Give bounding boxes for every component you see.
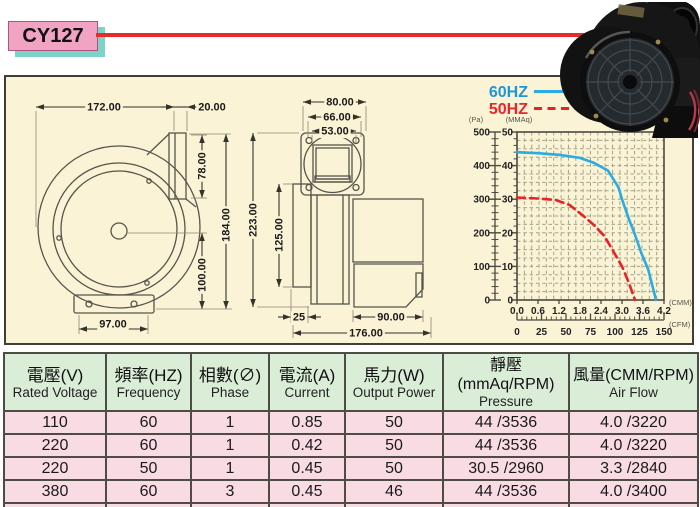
screw [656,40,661,45]
cell-airflow: 3.3 /2840 [569,457,698,480]
dim-arrow [199,135,205,143]
motor-upper [353,199,423,262]
cell-current: 0.45 [269,480,345,503]
screw [594,114,599,119]
pa-tick: 0 [484,296,490,307]
dim-label: 125.00 [274,218,286,252]
product-photo [548,0,700,140]
dim-arrow [308,314,316,320]
cell-power: 46 [345,503,443,507]
performance-chart [489,132,664,320]
dim-label: 176.00 [349,328,383,340]
cell-phase: 1 [191,411,269,434]
dim-arrow [199,190,205,198]
dim-arrow [415,314,423,320]
dim-label: 90.00 [377,312,405,324]
blower-photo-art [560,2,700,138]
cmm-tick: 0.6 [531,306,545,317]
col-header-phase: 相數(∅)Phase [191,353,269,411]
dim-arrow [276,279,282,287]
cell-voltage: 380 [4,503,106,507]
table-row: 3806030.454644 /35364.0 /3400 [4,480,698,503]
cell-airflow: 4.0 /3220 [569,434,698,457]
cmm-tick: 1.2 [552,306,566,317]
mmaq-tick: 50 [502,128,514,139]
table-row: 2206010.425044 /35364.0 /3220 [4,434,698,457]
dim-label: 53.00 [321,126,349,138]
model-number: CY127 [22,25,83,47]
cell-current: 0.42 [269,434,345,457]
bolt-hole [145,281,149,285]
outlet-duct-lower [186,199,196,207]
axis-unit-pa: (Pa) [469,115,484,124]
pa-tick: 100 [473,262,490,273]
dim-arrow [276,184,282,192]
cmm-tick: 3.6 [636,306,650,317]
cell-current: 0.85 [269,411,345,434]
pa-tick: 500 [473,128,490,139]
cmm-tick: 0.0 [510,306,524,317]
model-badge: CY127 [8,21,98,51]
dim-label: 223.00 [248,203,260,237]
inlet-ring-inner [61,171,177,287]
cell-phase: 1 [191,434,269,457]
cfm-tick: 100 [607,327,624,338]
dim-arrow [223,301,229,309]
outlet-opening-inner [316,148,349,179]
pa-tick: 200 [473,228,490,239]
mmaq-tick: 0 [507,296,513,307]
cfm-tick: 50 [560,327,572,338]
dim-arrow [283,314,291,320]
cell-pressure: 30.5 /2960 [443,457,569,480]
dim-label: 172.00 [87,102,121,114]
dim-arrow [166,104,174,110]
dim-label: 20.00 [198,102,226,114]
dim-arrow [358,99,366,105]
dim-label: 66.00 [323,112,351,124]
legend-label-60hz: 60HZ [489,84,528,101]
cfm-tick: 125 [631,327,648,338]
table-row: 1106010.855044 /35364.0 /3220 [4,411,698,434]
dim-arrow [140,326,148,332]
screw [664,118,669,123]
dim-label: 25 [293,312,305,324]
col-header-output-power: 馬力(W)Output Power [345,353,443,411]
dim-label: 80.00 [326,97,354,109]
side-view-drawing [293,133,423,307]
legend-label-50hz: 50HZ [489,101,528,118]
cell-pressure: 44 /3536 [443,434,569,457]
dim-arrow [423,330,431,336]
dim-arrow [79,326,87,332]
cell-frequency: 60 [106,480,191,503]
motor-lower [354,264,423,307]
mmaq-tick: 10 [502,262,514,273]
dim-arrow [353,314,361,320]
cell-current: 0.45 [269,457,345,480]
dim-arrow [293,330,301,336]
cell-frequency: 50 [106,457,191,480]
dim-arrow [36,104,44,110]
bolt-hole [57,236,61,240]
spec-table: 電壓(V)Rated Voltage 頻率(HZ)Frequency 相數(∅)… [3,352,699,507]
cmm-tick: 4.2 [657,306,671,317]
datasheet-page: CY127 [0,0,700,507]
cell-pressure: 44 /3536 [443,411,569,434]
pa-tick: 300 [473,195,490,206]
dim-arrow [303,99,311,105]
cfm-tick: 75 [585,327,597,338]
scroll-side [293,184,311,287]
dim-arrow [308,114,316,120]
cfm-tick: 25 [536,327,548,338]
cell-power: 50 [345,411,443,434]
col-header-pressure: 靜壓(mmAq/RPM)Pressure [443,353,569,411]
cell-frequency: 50 [106,503,191,507]
cell-airflow: 3.3 /2840 [569,503,698,507]
mmaq-tick: 40 [502,161,514,172]
screw [590,50,595,55]
dim-label: 97.00 [99,319,127,331]
dimension-lines [36,99,431,338]
cell-pressure: 30.5 /2960 [443,503,569,507]
dim-arrow [199,301,205,309]
flange-hole [306,138,312,144]
cell-current: 0.3 [269,503,345,507]
axis-unit-cmm: (CMM) [669,298,692,307]
shaft-hub [111,223,127,239]
cell-phase: 3 [191,480,269,503]
mmaq-tick: 30 [502,195,514,206]
cell-phase: 1 [191,457,269,480]
col-header-voltage: 電壓(V)Rated Voltage [4,353,106,411]
cell-phase: 3 [191,503,269,507]
cell-voltage: 380 [4,480,106,503]
cell-power: 50 [345,434,443,457]
dim-arrow [353,114,361,120]
grille-hub [623,75,637,89]
cell-voltage: 220 [4,457,106,480]
inlet-ring-outer [53,163,185,295]
cell-power: 50 [345,457,443,480]
flange-hole [353,185,359,191]
cell-frequency: 60 [106,434,191,457]
dim-label: 100.00 [197,258,209,292]
mmaq-tick: 20 [502,228,514,239]
axis-unit-cfm: (CFM) [669,320,691,329]
cfm-tick: 0 [514,327,520,338]
cell-voltage: 220 [4,434,106,457]
dim-label: 184.00 [221,208,233,242]
cell-power: 46 [345,480,443,503]
dim-arrow [250,133,256,141]
dim-arrow [250,299,256,307]
cell-voltage: 110 [4,411,106,434]
pa-tick: 400 [473,161,490,172]
table-row: 2205010.455030.5 /29603.3 /2840 [4,457,698,480]
col-header-airflow: 風量(CMM/RPM)Air Flow [569,353,698,411]
cmm-tick: 3.0 [615,306,629,317]
cmm-tick: 2.4 [594,306,608,317]
table-header-row: 電壓(V)Rated Voltage 頻率(HZ)Frequency 相數(∅)… [4,353,698,411]
front-view-drawing [38,133,200,313]
dim-arrow [223,134,229,142]
dim-label: 78.00 [197,152,209,180]
dim-arrow [187,104,195,110]
outlet-duct-edge [147,134,169,155]
cell-airflow: 4.0 /3220 [569,411,698,434]
table-row: 3805030.34630.5 /29603.3 /2840 [4,503,698,507]
housing-outline [38,146,200,308]
cell-airflow: 4.0 /3400 [569,480,698,503]
cmm-tick: 1.8 [573,306,587,317]
col-header-current: 電流(A)Current [269,353,345,411]
col-header-frequency: 頻率(HZ)Frequency [106,353,191,411]
cell-frequency: 60 [106,411,191,434]
cell-pressure: 44 /3536 [443,480,569,503]
